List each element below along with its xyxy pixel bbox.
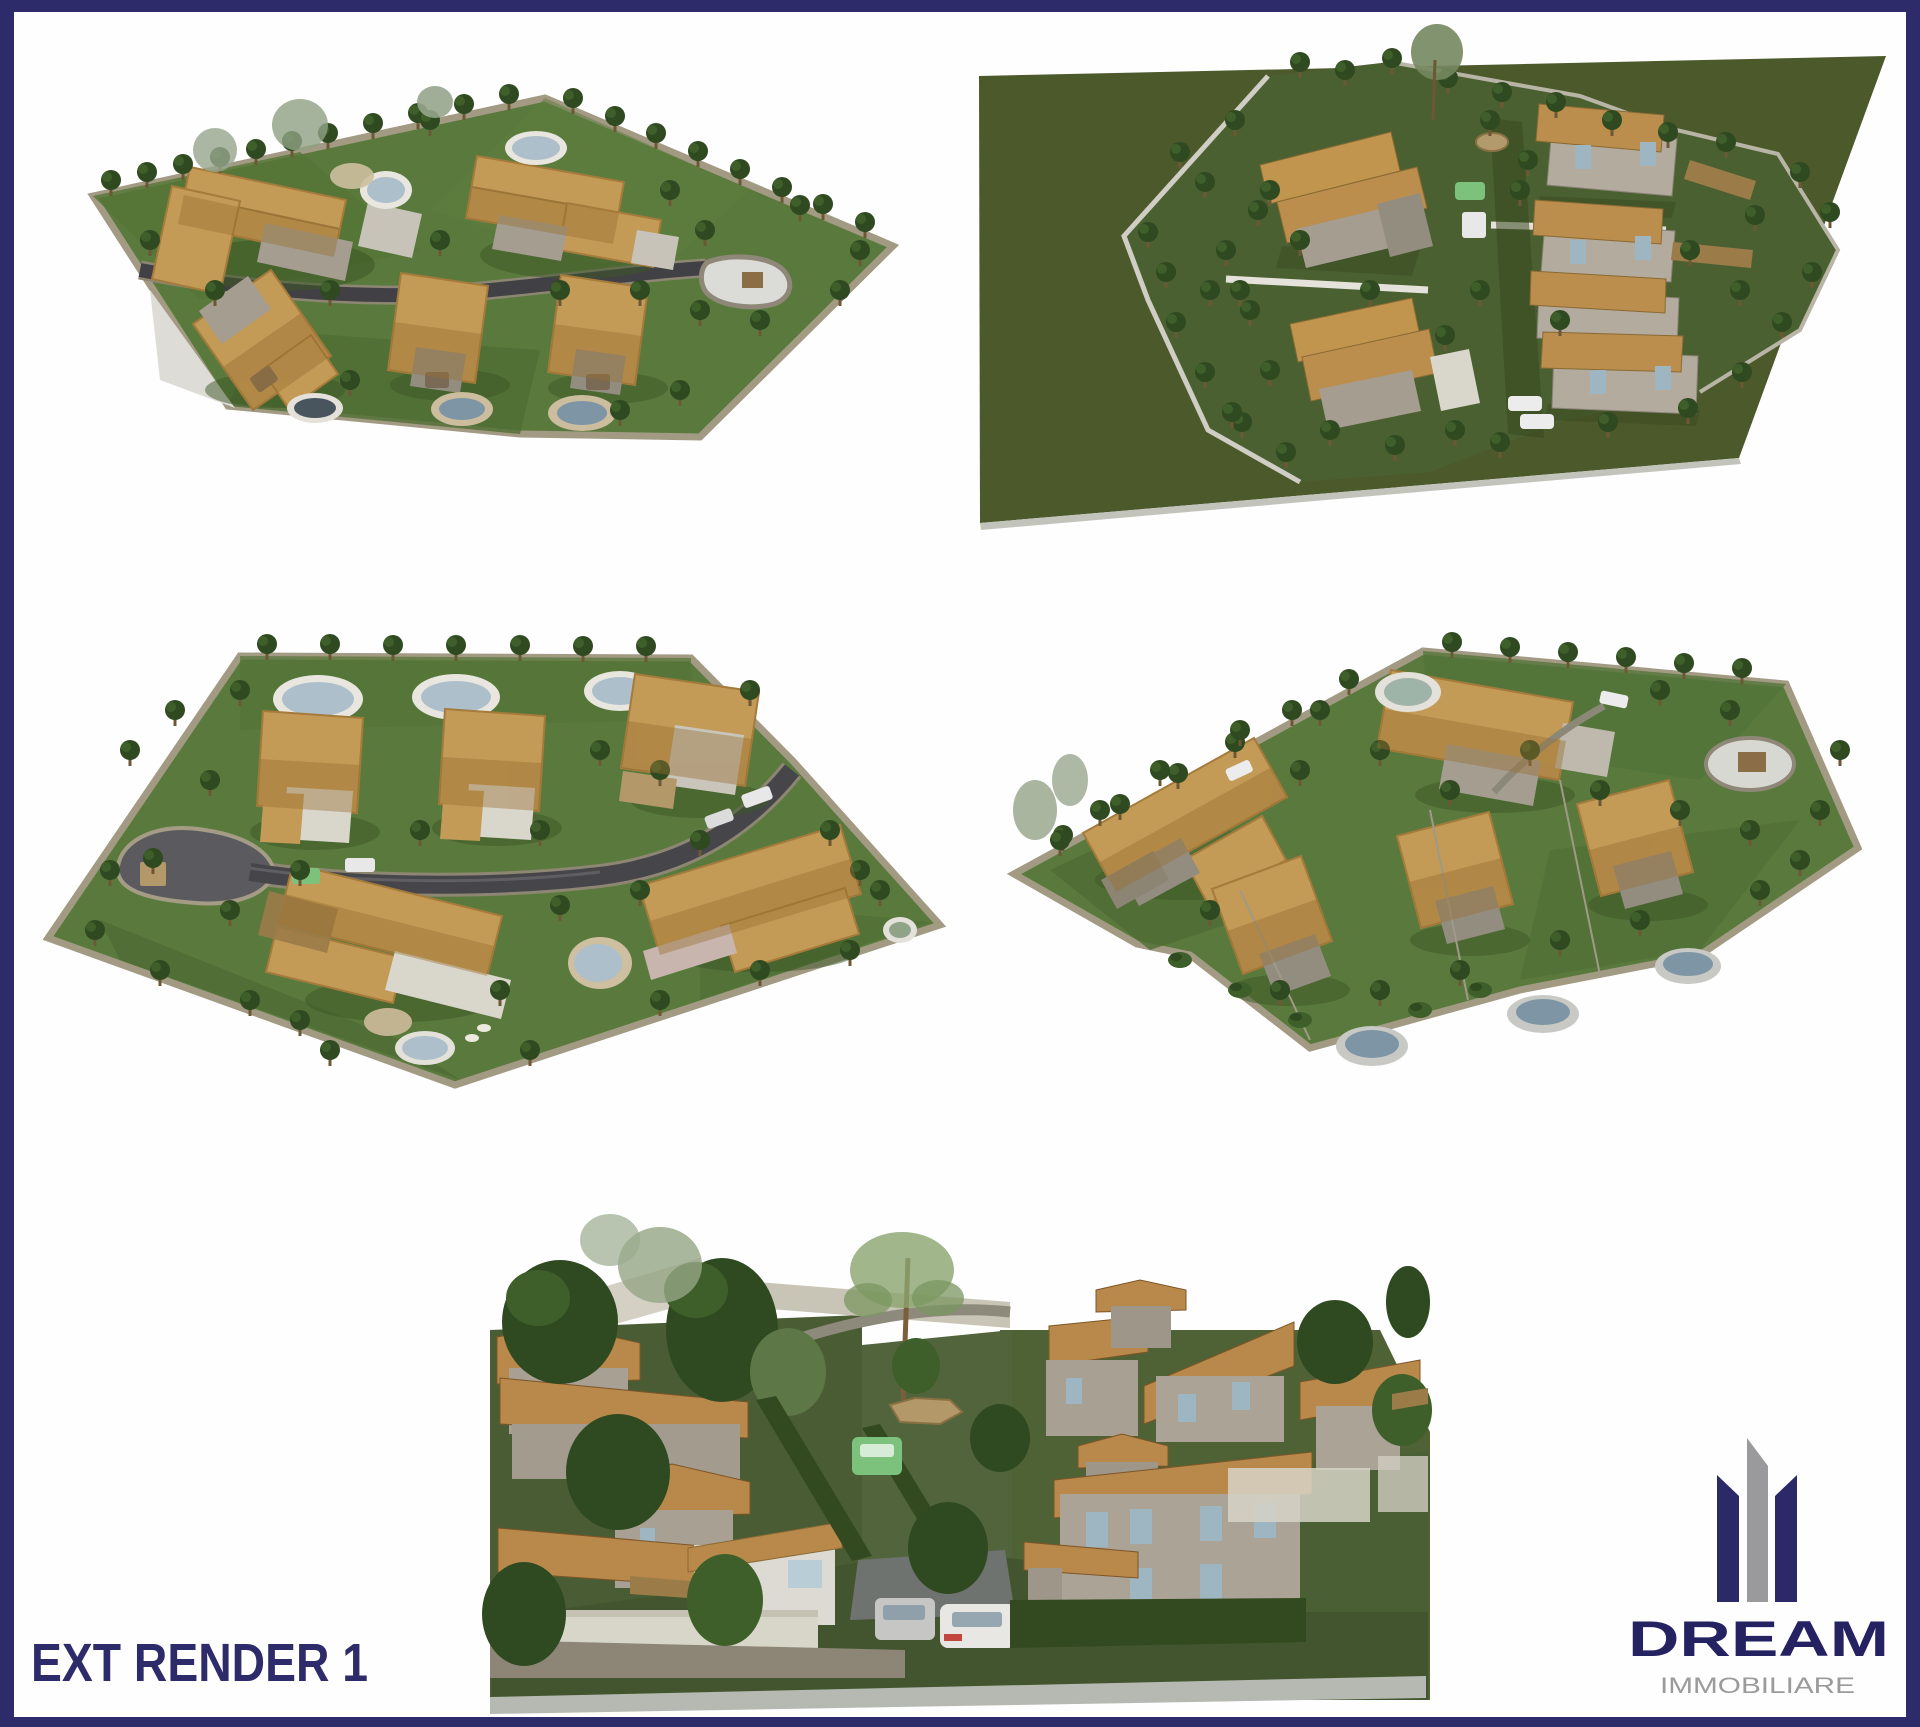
svg-text:IMMOBILIARE: IMMOBILIARE (1660, 1673, 1855, 1698)
svg-text:DREAM: DREAM (1628, 1611, 1889, 1667)
svg-text:EXT RENDER 1: EXT RENDER 1 (31, 1633, 368, 1693)
